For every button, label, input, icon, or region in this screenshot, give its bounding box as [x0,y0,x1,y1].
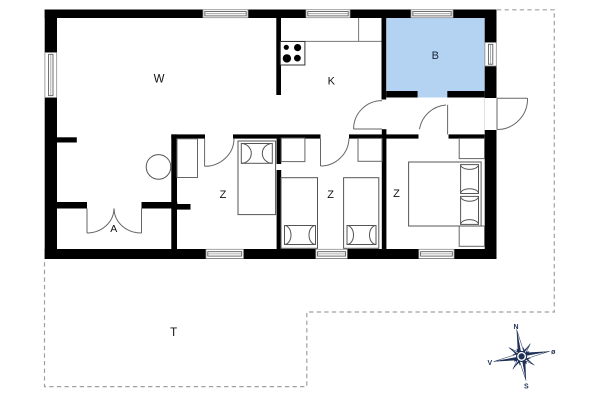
svg-text:B: B [432,50,439,62]
svg-text:Z: Z [220,189,227,201]
svg-text:N: N [513,324,518,331]
svg-text:V: V [487,360,492,367]
svg-text:S: S [524,384,529,391]
svg-text:ø: ø [551,349,556,356]
svg-text:Z: Z [327,189,334,201]
svg-text:A: A [110,223,117,235]
svg-text:Z: Z [393,188,400,200]
svg-text:W: W [154,73,165,85]
svg-text:T: T [170,327,177,339]
svg-text:K: K [328,75,336,87]
